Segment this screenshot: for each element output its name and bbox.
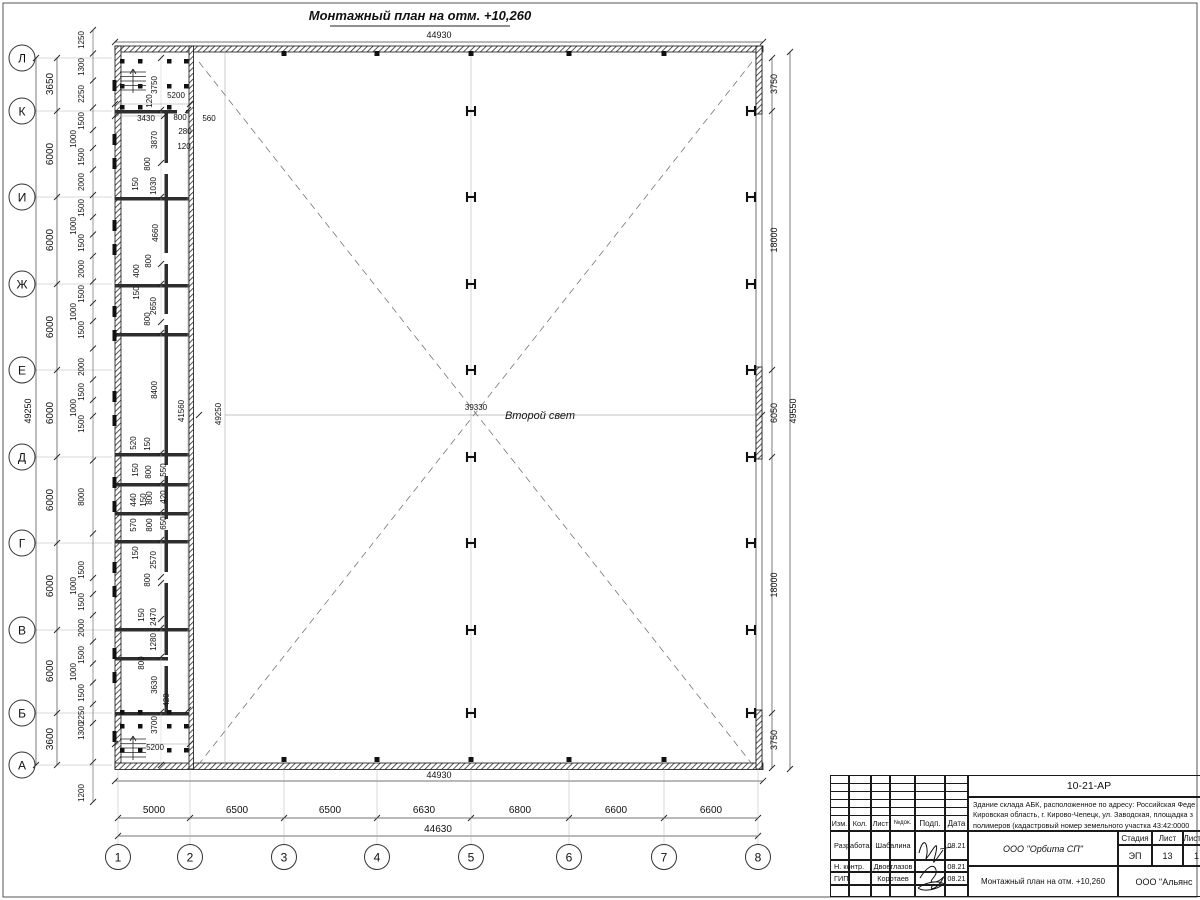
wall-partition	[115, 284, 189, 288]
sheet-label: Лист	[1159, 834, 1176, 843]
column-marker	[282, 51, 287, 56]
dim-interior: 5200	[146, 743, 164, 752]
tb-header-izm: Изм.	[830, 815, 849, 831]
dim-row: 6000	[45, 574, 56, 597]
stair-arrow	[133, 69, 136, 74]
wall-corridor	[165, 110, 169, 163]
sheet-value: 13	[1162, 851, 1172, 861]
grid-axis-label: Д	[18, 451, 26, 465]
column-marker	[375, 757, 380, 762]
dim-window: 1500	[77, 593, 86, 611]
grid-axis-label: Ж	[16, 278, 27, 292]
tb-header-kol-label: Кол.	[853, 819, 867, 828]
dim-interior: 800	[143, 157, 152, 171]
column-marker	[120, 710, 125, 715]
tb-role-label: Н. контр.	[834, 862, 864, 871]
dim-window: 2250	[77, 85, 86, 103]
dim-window: 2000	[77, 173, 86, 191]
stair-arrow	[130, 736, 133, 741]
wall-corridor	[165, 583, 169, 655]
dim-interior: 4660	[151, 224, 160, 242]
dim-interior: 800	[143, 312, 152, 326]
pilaster	[113, 244, 117, 255]
dim-interior: 800	[145, 491, 154, 505]
dim-interior: 3750	[150, 76, 159, 94]
dim-interior: 2470	[149, 608, 158, 626]
tb-date-3: 08.21	[945, 872, 968, 885]
tb-empty-date	[945, 885, 968, 897]
plan-name-text: Монтажный план на отм. +10,260	[981, 877, 1105, 886]
pilaster	[113, 391, 117, 402]
stage-value: ЭП	[1129, 851, 1142, 861]
dim-interior: 3870	[150, 131, 159, 149]
tb-role-label: ГИП	[834, 874, 848, 883]
wall-corridor	[165, 530, 169, 572]
dim-window: 2000	[77, 619, 86, 637]
tb-name-shabalina: Шабалина	[871, 831, 915, 860]
dim-col: 6500	[226, 805, 249, 816]
tb-role-gip: ГИП	[830, 872, 871, 885]
drawing-sheet: Монтажный план на отм. +10,2604493044930…	[0, 0, 1200, 900]
tb-empty-name	[871, 885, 915, 897]
second-light-label: Второй свет	[505, 410, 575, 422]
wall-partition	[115, 512, 189, 516]
tb-date-label: 08.21	[947, 841, 965, 850]
column-marker	[469, 51, 474, 56]
description-line: полимеров (кадастровый номер земельного …	[973, 821, 1200, 831]
column-marker	[167, 105, 172, 110]
dim-window: 1200	[77, 784, 86, 802]
grid-axis-label: 1	[115, 851, 122, 865]
dim-right: 18000	[769, 572, 779, 597]
tb-sheet-header: Лист	[1152, 831, 1183, 845]
grid-axis-label: В	[18, 624, 26, 638]
dim-overall-right: 49550	[788, 398, 798, 423]
dim-overall-bottom2: 44630	[424, 824, 452, 835]
column-marker	[138, 84, 143, 89]
pilaster	[113, 306, 117, 317]
dim-window: 1500	[77, 234, 86, 252]
dim-window: 1250	[77, 31, 86, 49]
dim-window: 2250	[77, 706, 86, 724]
dim-tick	[196, 412, 202, 418]
tb-header-data-label: Дата	[948, 819, 966, 828]
dim-interior: 120	[145, 94, 154, 108]
tb-header-list: Лист	[871, 815, 890, 831]
tb-date-1: 08.21	[945, 831, 968, 860]
tb-date-2: 08.21	[945, 860, 968, 872]
dim-window: 1500	[77, 199, 86, 217]
dim-row: 3650	[45, 72, 56, 95]
column-marker	[567, 757, 572, 762]
dim-interior: 400	[132, 264, 141, 278]
dim-interior: 150	[131, 463, 140, 477]
tb-role-nkontr: Н. контр.	[830, 860, 871, 872]
pilaster	[113, 562, 117, 573]
grid-axis-label: 2	[187, 851, 194, 865]
stair-arrow	[133, 736, 136, 741]
column-marker	[184, 59, 189, 64]
pilaster	[113, 731, 117, 742]
pilaster	[113, 415, 117, 426]
grid-axis-label: К	[19, 105, 26, 119]
column-marker	[282, 757, 287, 762]
tb-header-ndok: №док.	[890, 815, 915, 831]
pilaster	[113, 477, 117, 488]
dim-window: 1000	[69, 303, 78, 321]
dim-interior: 800	[143, 573, 152, 587]
dim-window: 2000	[77, 358, 86, 376]
grid-axis-label: Л	[18, 52, 26, 66]
column-marker	[120, 59, 125, 64]
tb-date-label: 08.21	[947, 862, 965, 871]
tb-rule	[830, 791, 968, 792]
dim-interior: 800	[145, 518, 154, 532]
column-marker	[662, 51, 667, 56]
dim-interior: 150	[131, 177, 140, 191]
dim-interior: 3430	[137, 114, 155, 123]
wall-partition	[115, 197, 189, 201]
dim-col: 5000	[143, 805, 166, 816]
dim-interior: 2650	[149, 297, 158, 315]
dim-interior: 560	[202, 114, 216, 123]
tb-header-list-label: Лист	[873, 819, 889, 828]
tb-description: Здание склада АБК, расположенное по адре…	[968, 797, 1200, 831]
tb-header-ndok-label: №док.	[894, 820, 912, 826]
dim-col: 6500	[319, 805, 342, 816]
dim-interior: 150	[137, 608, 146, 622]
dim-col: 6600	[700, 805, 723, 816]
grid-axis-label: 5	[468, 851, 475, 865]
column-marker	[138, 724, 143, 729]
dim-right: 6050	[769, 403, 779, 423]
wall-partition	[115, 333, 189, 337]
tb-rule	[830, 799, 968, 800]
dim-window: 1500	[77, 383, 86, 401]
grid-axis-label: 3	[281, 851, 288, 865]
wall-corridor	[165, 264, 169, 314]
dim-interior: 150	[132, 286, 141, 300]
dim-right: 3750	[769, 74, 779, 94]
column-marker	[138, 710, 143, 715]
wall-partition	[115, 110, 177, 114]
dim-interior: 49250	[214, 402, 223, 425]
tb-name-label: Двоеглазов	[874, 862, 913, 871]
pilaster	[113, 672, 117, 683]
pilaster	[113, 586, 117, 597]
dim-interior: 420	[159, 490, 168, 504]
wall-partition	[115, 453, 189, 457]
tb-sign-cell-1	[915, 831, 945, 860]
grid-axis-label: 6	[566, 851, 573, 865]
pilaster	[113, 134, 117, 145]
tb-rule	[830, 783, 968, 784]
dim-interior: 3630	[150, 676, 159, 694]
tb-header-data: Дата	[945, 815, 968, 831]
dim-window: 1500	[77, 684, 86, 702]
pilaster	[113, 648, 117, 659]
pilaster	[113, 80, 117, 91]
grid-axis-label: А	[18, 759, 26, 773]
dim-window: 1000	[69, 217, 78, 235]
stage-label: Стадия	[1121, 834, 1148, 843]
dim-row: 6000	[45, 142, 56, 165]
pilaster	[113, 220, 117, 231]
dim-row: 3600	[45, 727, 56, 750]
column-marker	[120, 105, 125, 110]
floor-plan-canvas: Монтажный план на отм. +10,2604493044930…	[0, 0, 1200, 900]
tb-header-podp-label: Подп.	[919, 819, 940, 828]
org-text: ООО "Орбита СП"	[1003, 844, 1083, 854]
dim-interior: 2570	[149, 551, 158, 569]
tb-name-label: Коротаев	[877, 874, 909, 883]
dim-interior: 650	[159, 516, 168, 530]
tb-empty-sign	[915, 885, 945, 897]
wall-partition	[115, 628, 189, 632]
dim-interior: 5200	[167, 91, 185, 100]
column-marker	[167, 710, 172, 715]
dim-interior: 1030	[149, 177, 158, 195]
wall-left	[115, 46, 121, 769]
column-marker	[120, 724, 125, 729]
dim-col: 6600	[605, 805, 628, 816]
tb-header-podp: Подп.	[915, 815, 945, 831]
wall-right-segment	[756, 46, 762, 114]
dim-window: 1500	[77, 112, 86, 130]
dim-right: 18000	[769, 227, 779, 252]
dim-window: 1500	[77, 148, 86, 166]
column-marker	[567, 51, 572, 56]
tb-empty-role	[830, 885, 871, 897]
dim-interior: 550	[159, 463, 168, 477]
dim-window: 1000	[69, 577, 78, 595]
tb-role-label: Разработал	[834, 841, 871, 850]
column-marker	[120, 84, 125, 89]
dim-col: 6630	[413, 805, 436, 816]
dim-window: 1300	[77, 58, 86, 76]
grid-axis-label: 7	[661, 851, 668, 865]
dim-row: 6000	[45, 659, 56, 682]
tb-sign-cell-3	[915, 872, 945, 885]
column-marker	[184, 748, 189, 753]
dim-row: 6000	[45, 401, 56, 424]
dim-interior: 41560	[177, 399, 186, 422]
tb-doc-number: 10-21-АР	[968, 775, 1200, 797]
dim-overall-top: 44930	[426, 30, 451, 40]
grid-axis-label: И	[18, 191, 27, 205]
sheets-value: 1	[1194, 851, 1199, 861]
dim-right: 3750	[769, 730, 779, 750]
column-marker	[167, 84, 172, 89]
dim-interior: 800	[137, 656, 146, 670]
tb-rule	[830, 807, 968, 808]
dim-interior: 1280	[149, 633, 158, 651]
dim-window: 1000	[69, 130, 78, 148]
column-marker	[662, 757, 667, 762]
dim-interior: 8400	[150, 381, 159, 399]
dim-interior: 800	[144, 254, 153, 268]
column-marker	[138, 59, 143, 64]
dim-window: 1000	[69, 399, 78, 417]
dim-interior: 440	[129, 493, 138, 507]
dim-interior: 120	[177, 142, 191, 151]
wall-corridor	[165, 174, 169, 253]
tb-date-label: 08.21	[947, 874, 965, 883]
pilaster	[113, 158, 117, 169]
dim-window: 1000	[69, 663, 78, 681]
pilaster	[113, 501, 117, 512]
dim-interior: 39330	[465, 403, 488, 412]
dim-interior: 3700	[150, 716, 159, 734]
dim-row: 6000	[45, 315, 56, 338]
wall-partition	[115, 540, 189, 544]
dim-window: 1500	[77, 285, 86, 303]
dim-overall-bottom: 44930	[426, 770, 451, 780]
tb-role-razrabotal: Разработал	[830, 831, 871, 860]
description-line: Здание склада АБК, расположенное по адре…	[973, 800, 1200, 810]
stair-arrow	[130, 69, 133, 74]
tb-stage-value: ЭП	[1118, 845, 1152, 866]
doc-number-text: 10-21-АР	[1067, 780, 1111, 792]
tb-header-izm-label: Изм.	[832, 819, 848, 828]
column-marker	[184, 84, 189, 89]
column-marker	[375, 51, 380, 56]
wall-right-segment	[756, 710, 762, 769]
column-marker	[167, 748, 172, 753]
tb-sheet-value: 13	[1152, 845, 1183, 866]
tb-sheets-header: Листов	[1183, 831, 1200, 845]
grid-axis-label: Б	[18, 707, 26, 721]
tb-name-label: Шабалина	[875, 841, 910, 850]
company-text: ООО "Альянс	[1136, 877, 1193, 887]
wall-partition	[115, 712, 189, 716]
tb-company: ООО "Альянс	[1118, 866, 1200, 897]
column-marker	[138, 105, 143, 110]
wall-bottom	[115, 763, 763, 770]
drawing-title: Монтажный план на отм. +10,260	[309, 8, 532, 23]
dim-interior: 800	[144, 465, 153, 479]
tb-name-korotaev: Коротаев	[871, 872, 915, 885]
grid-axis-label: Е	[18, 364, 26, 378]
wall-partition	[115, 483, 189, 487]
wall-hall	[189, 46, 194, 769]
dim-interior: 420	[162, 693, 171, 707]
column-marker	[167, 59, 172, 64]
column-marker	[469, 757, 474, 762]
column-marker	[120, 748, 125, 753]
column-marker	[167, 724, 172, 729]
grid-axis-label: Г	[19, 537, 26, 551]
description-line: Кировская область, г. Кирово-Чепецк, ул.…	[973, 810, 1200, 820]
wall-corridor	[165, 325, 169, 465]
wall-right-segment	[756, 367, 762, 459]
dim-window: 8000	[77, 488, 86, 506]
dim-interior: 570	[129, 518, 138, 532]
dim-interior: 150	[143, 437, 152, 451]
dim-interior: 800	[173, 113, 187, 122]
dim-row: 6000	[45, 488, 56, 511]
sheets-label: Листов	[1184, 834, 1200, 843]
dim-window: 1500	[77, 415, 86, 433]
dim-interior: 280	[178, 127, 192, 136]
dim-window: 1500	[77, 646, 86, 664]
tb-sign-cell-2	[915, 860, 945, 872]
tb-stage-header: Стадия	[1118, 831, 1152, 845]
dim-window: 2000	[77, 260, 86, 278]
tb-plan-name: Монтажный план на отм. +10,260	[968, 866, 1118, 897]
grid-axis-label: 4	[374, 851, 381, 865]
dim-row: 6000	[45, 228, 56, 251]
tb-header-kol: Кол.	[849, 815, 871, 831]
dim-window: 1500	[77, 321, 86, 339]
dim-window: 1500	[77, 561, 86, 579]
dim-window: 1300	[77, 722, 86, 740]
pilaster	[113, 330, 117, 341]
grid-axis-label: 8	[755, 851, 762, 865]
dim-col: 6800	[509, 805, 532, 816]
tb-org: ООО "Орбита СП"	[968, 831, 1118, 866]
column-marker	[184, 724, 189, 729]
dim-interior: 520	[129, 436, 138, 450]
dim-interior: 150	[131, 546, 140, 560]
dim-overall-left: 49250	[23, 398, 33, 423]
column-marker	[138, 748, 143, 753]
tb-name-dvoeglazov: Двоеглазов	[871, 860, 915, 872]
tb-sheets-value: 1	[1183, 845, 1200, 866]
